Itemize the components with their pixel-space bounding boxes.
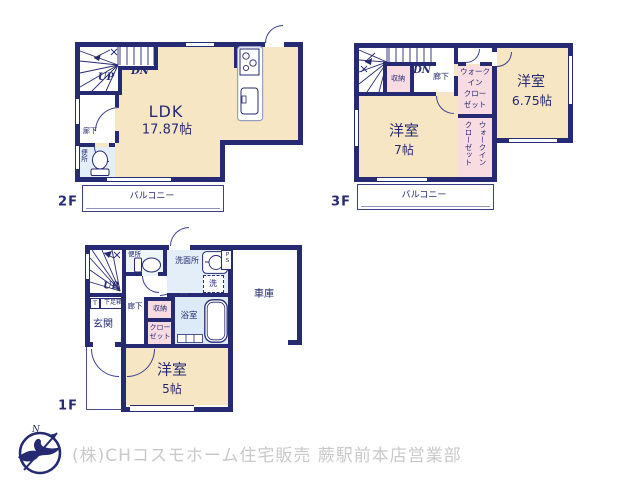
stair-arrow-icon (94, 54, 101, 61)
ldk-size-label: 17.87帖 (142, 124, 192, 137)
dn-label: DN (131, 67, 149, 77)
room-5jo-label: 洋室 (157, 363, 187, 378)
window (354, 110, 359, 146)
window (75, 99, 80, 124)
hallway-1f-label: 廊下 (128, 302, 143, 310)
walkin-closet-2-label: ウォークイン クローゼット (461, 121, 489, 176)
room-5jo-size: 5帖 (162, 383, 182, 395)
toilet-icon (134, 257, 162, 273)
hallway-3f-label: 廊下 (433, 73, 449, 81)
north-label: N (31, 425, 41, 435)
room-7jo-size: 7帖 (394, 144, 414, 156)
storage-1f-label: 収納 (153, 306, 167, 313)
wall (233, 245, 302, 250)
company-logo-icon: N (12, 424, 70, 478)
porch-line (86, 347, 87, 410)
door-arc (170, 227, 189, 246)
company-name: (株)CHコスモホーム住宅販売 蕨駅前本店営業部 (72, 441, 462, 466)
walkin-closet-1-label: ウォーク イン クロー ゼット (456, 66, 494, 110)
bathtub-icon (204, 299, 228, 343)
bathroom-label: 浴室 (180, 312, 197, 321)
shoe-box-label: 下足箱 (104, 300, 122, 306)
wic1-line4: ゼット (456, 99, 494, 110)
window (186, 42, 214, 47)
wall (121, 297, 126, 347)
window (509, 138, 557, 143)
wic1-line1: ウォーク (456, 66, 494, 77)
window (130, 405, 194, 412)
entrance-label: 玄関 (93, 320, 113, 330)
washroom-label: 洗面所 (175, 257, 199, 265)
room-675-size: 6.75帖 (512, 95, 552, 108)
storage-3f-label: 収納 (391, 76, 405, 83)
wic1-line3: クロー (456, 88, 494, 99)
floor-3f-label: 3F (331, 196, 351, 209)
wall (297, 250, 302, 345)
pipe-space-label: PS (224, 252, 230, 264)
toilet-2f-label: 便所 (80, 149, 87, 162)
balcony-door-window (377, 177, 427, 182)
closet-label-1: クロー (150, 325, 171, 332)
toilet-1f-label: 便所 (128, 251, 141, 258)
balcony-door-window (107, 177, 171, 182)
garage-label: 車庫 (254, 290, 274, 300)
window (568, 56, 573, 104)
wic2-col2: クローゼット (461, 121, 475, 176)
balcony-3f-label: バルコニー (402, 192, 447, 201)
window (85, 254, 90, 279)
closet-label-2: ゼット (150, 334, 171, 341)
wall (115, 95, 119, 107)
door-arc (265, 25, 283, 43)
floor-1f-label: 1F (58, 400, 78, 413)
dn-label: DN (413, 66, 431, 76)
balcony-2f-label: バルコニー (130, 193, 175, 202)
wall (88, 342, 93, 347)
porch-line (86, 409, 122, 410)
up-label: UP (103, 281, 118, 291)
wic1-line2: イン (456, 77, 494, 88)
wall (154, 47, 158, 66)
wall (359, 92, 436, 96)
wic2-col1: ウォークイン (475, 121, 489, 176)
wall (115, 131, 119, 143)
floor-2f-label: 2F (58, 196, 78, 209)
room-7jo-label: 洋室 (389, 124, 419, 139)
bath-step-icon (177, 334, 203, 343)
kitchen-counter-icon (237, 46, 264, 122)
floorplan-page: UP DN 廊下 便所 (0, 0, 640, 480)
toilet-icon (88, 150, 112, 176)
shoe-cabinet-t-label: T (93, 300, 97, 307)
sink-icon (241, 88, 258, 114)
washer-label: 洗 (209, 280, 217, 288)
ldk-label: LDK (149, 104, 184, 120)
window (75, 146, 80, 169)
wall (126, 272, 142, 276)
up-label: UP (98, 73, 114, 83)
hallway-2f-label: 廊下 (83, 128, 97, 135)
room-675-label: 洋室 (517, 75, 545, 89)
wall (288, 340, 302, 345)
wall (171, 297, 175, 347)
